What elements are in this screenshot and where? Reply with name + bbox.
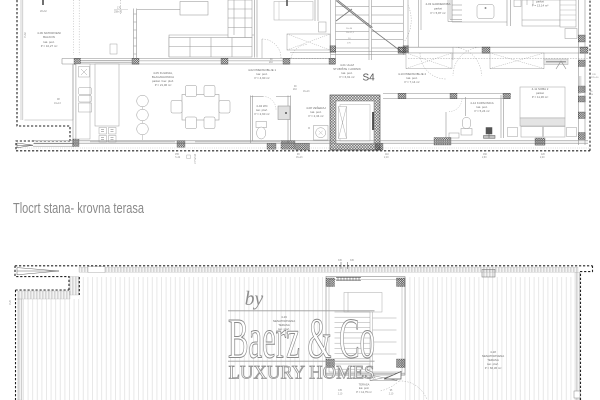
svg-text:2,10: 2,10 (389, 394, 394, 396)
svg-text:P = 2,34 m²: P = 2,34 m² (309, 114, 324, 118)
svg-text:P = 5,24 m²: P = 5,24 m² (475, 109, 490, 113)
svg-text:18×17,2: 18×17,2 (346, 31, 355, 34)
svg-text:S4: S4 (363, 73, 376, 84)
svg-text:BALKON: BALKON (43, 35, 55, 39)
svg-text:98 25+13: 98 25+13 (193, 154, 195, 164)
svg-text:P+32: P+32 (24, 32, 27, 38)
svg-text:P = 2,60 m²: P = 2,60 m² (255, 112, 270, 116)
svg-text:16×30: 16×30 (346, 27, 353, 30)
svg-text:2,10: 2,10 (384, 157, 389, 159)
svg-text:Tlocrt stana- krovna terasa: Tlocrt stana- krovna terasa (13, 200, 144, 217)
svg-text:P = 5,87 m²: P = 5,87 m² (431, 11, 446, 15)
svg-text:2,10: 2,10 (338, 394, 343, 396)
svg-text:P = 66,36 m²: P = 66,36 m² (485, 366, 502, 370)
svg-text:LUXURY HOMES: LUXURY HOMES (229, 364, 375, 384)
svg-text:P = 13,14 m²: P = 13,14 m² (532, 4, 549, 8)
svg-text:2,60: 2,60 (482, 157, 487, 159)
svg-text:16+13: 16+13 (303, 91, 310, 93)
svg-text:P = 6,91 m²: P = 6,91 m² (340, 75, 355, 79)
svg-text:P = 4,90 m²: P = 4,90 m² (255, 76, 270, 80)
svg-text:170: 170 (117, 7, 122, 10)
svg-text:kat. pod.: kat. pod. (359, 386, 370, 390)
svg-text:28+32: 28+32 (40, 10, 47, 13)
svg-text:258+32: 258+32 (114, 11, 123, 14)
svg-text:P = 10,27 m²: P = 10,27 m² (41, 44, 58, 48)
svg-text:2,20: 2,20 (540, 157, 545, 159)
svg-text:parket: parket (434, 7, 442, 11)
svg-text:P = 11,36 m²: P = 11,36 m² (532, 95, 548, 99)
svg-text:19+13: 19+13 (54, 102, 61, 105)
svg-text:P = 7,14 m²: P = 7,14 m² (405, 80, 420, 84)
svg-text:P = 21,06 m²: P = 21,06 m² (155, 83, 172, 87)
svg-text:4-03 GARDEROBA: 4-03 GARDEROBA (425, 2, 450, 6)
svg-text:225+20: 225+20 (591, 77, 599, 79)
svg-text:16+13: 16+13 (296, 157, 303, 159)
svg-text:P+B: P+B (9, 300, 12, 305)
svg-text:7+22: 7+22 (175, 157, 181, 159)
svg-text:P = 12,75 m²: P = 12,75 m² (356, 390, 372, 394)
